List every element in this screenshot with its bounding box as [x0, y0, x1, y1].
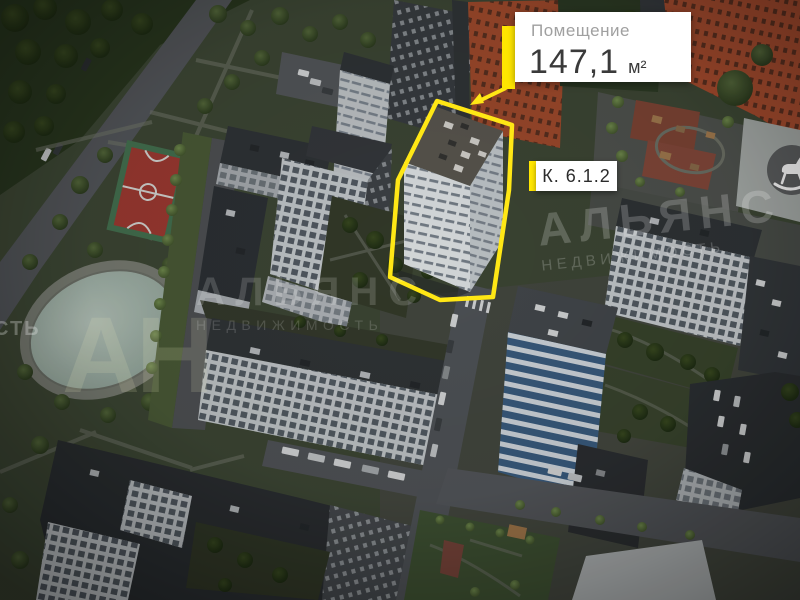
building-number-card[interactable]: К. 6.1.2	[526, 161, 621, 191]
accent-bar	[529, 161, 536, 191]
aerial-site-plan: АН АЛЬЯНС НЕДВИЖИМОСТЬ АЛЬЯНС НЕДВИЖИМОС…	[0, 0, 800, 600]
accent-bar	[502, 26, 515, 89]
area-unit: м²	[628, 57, 646, 78]
area-value: 147,1	[529, 43, 619, 82]
building-number-panel: К. 6.1.2	[536, 161, 617, 191]
area-card-title: Помещение	[531, 21, 691, 41]
area-card-panel: Помещение 147,1 м²	[515, 12, 691, 82]
building-number-label: К. 6.1.2	[542, 166, 611, 187]
area-label-card[interactable]: Помещение 147,1 м²	[498, 12, 698, 92]
